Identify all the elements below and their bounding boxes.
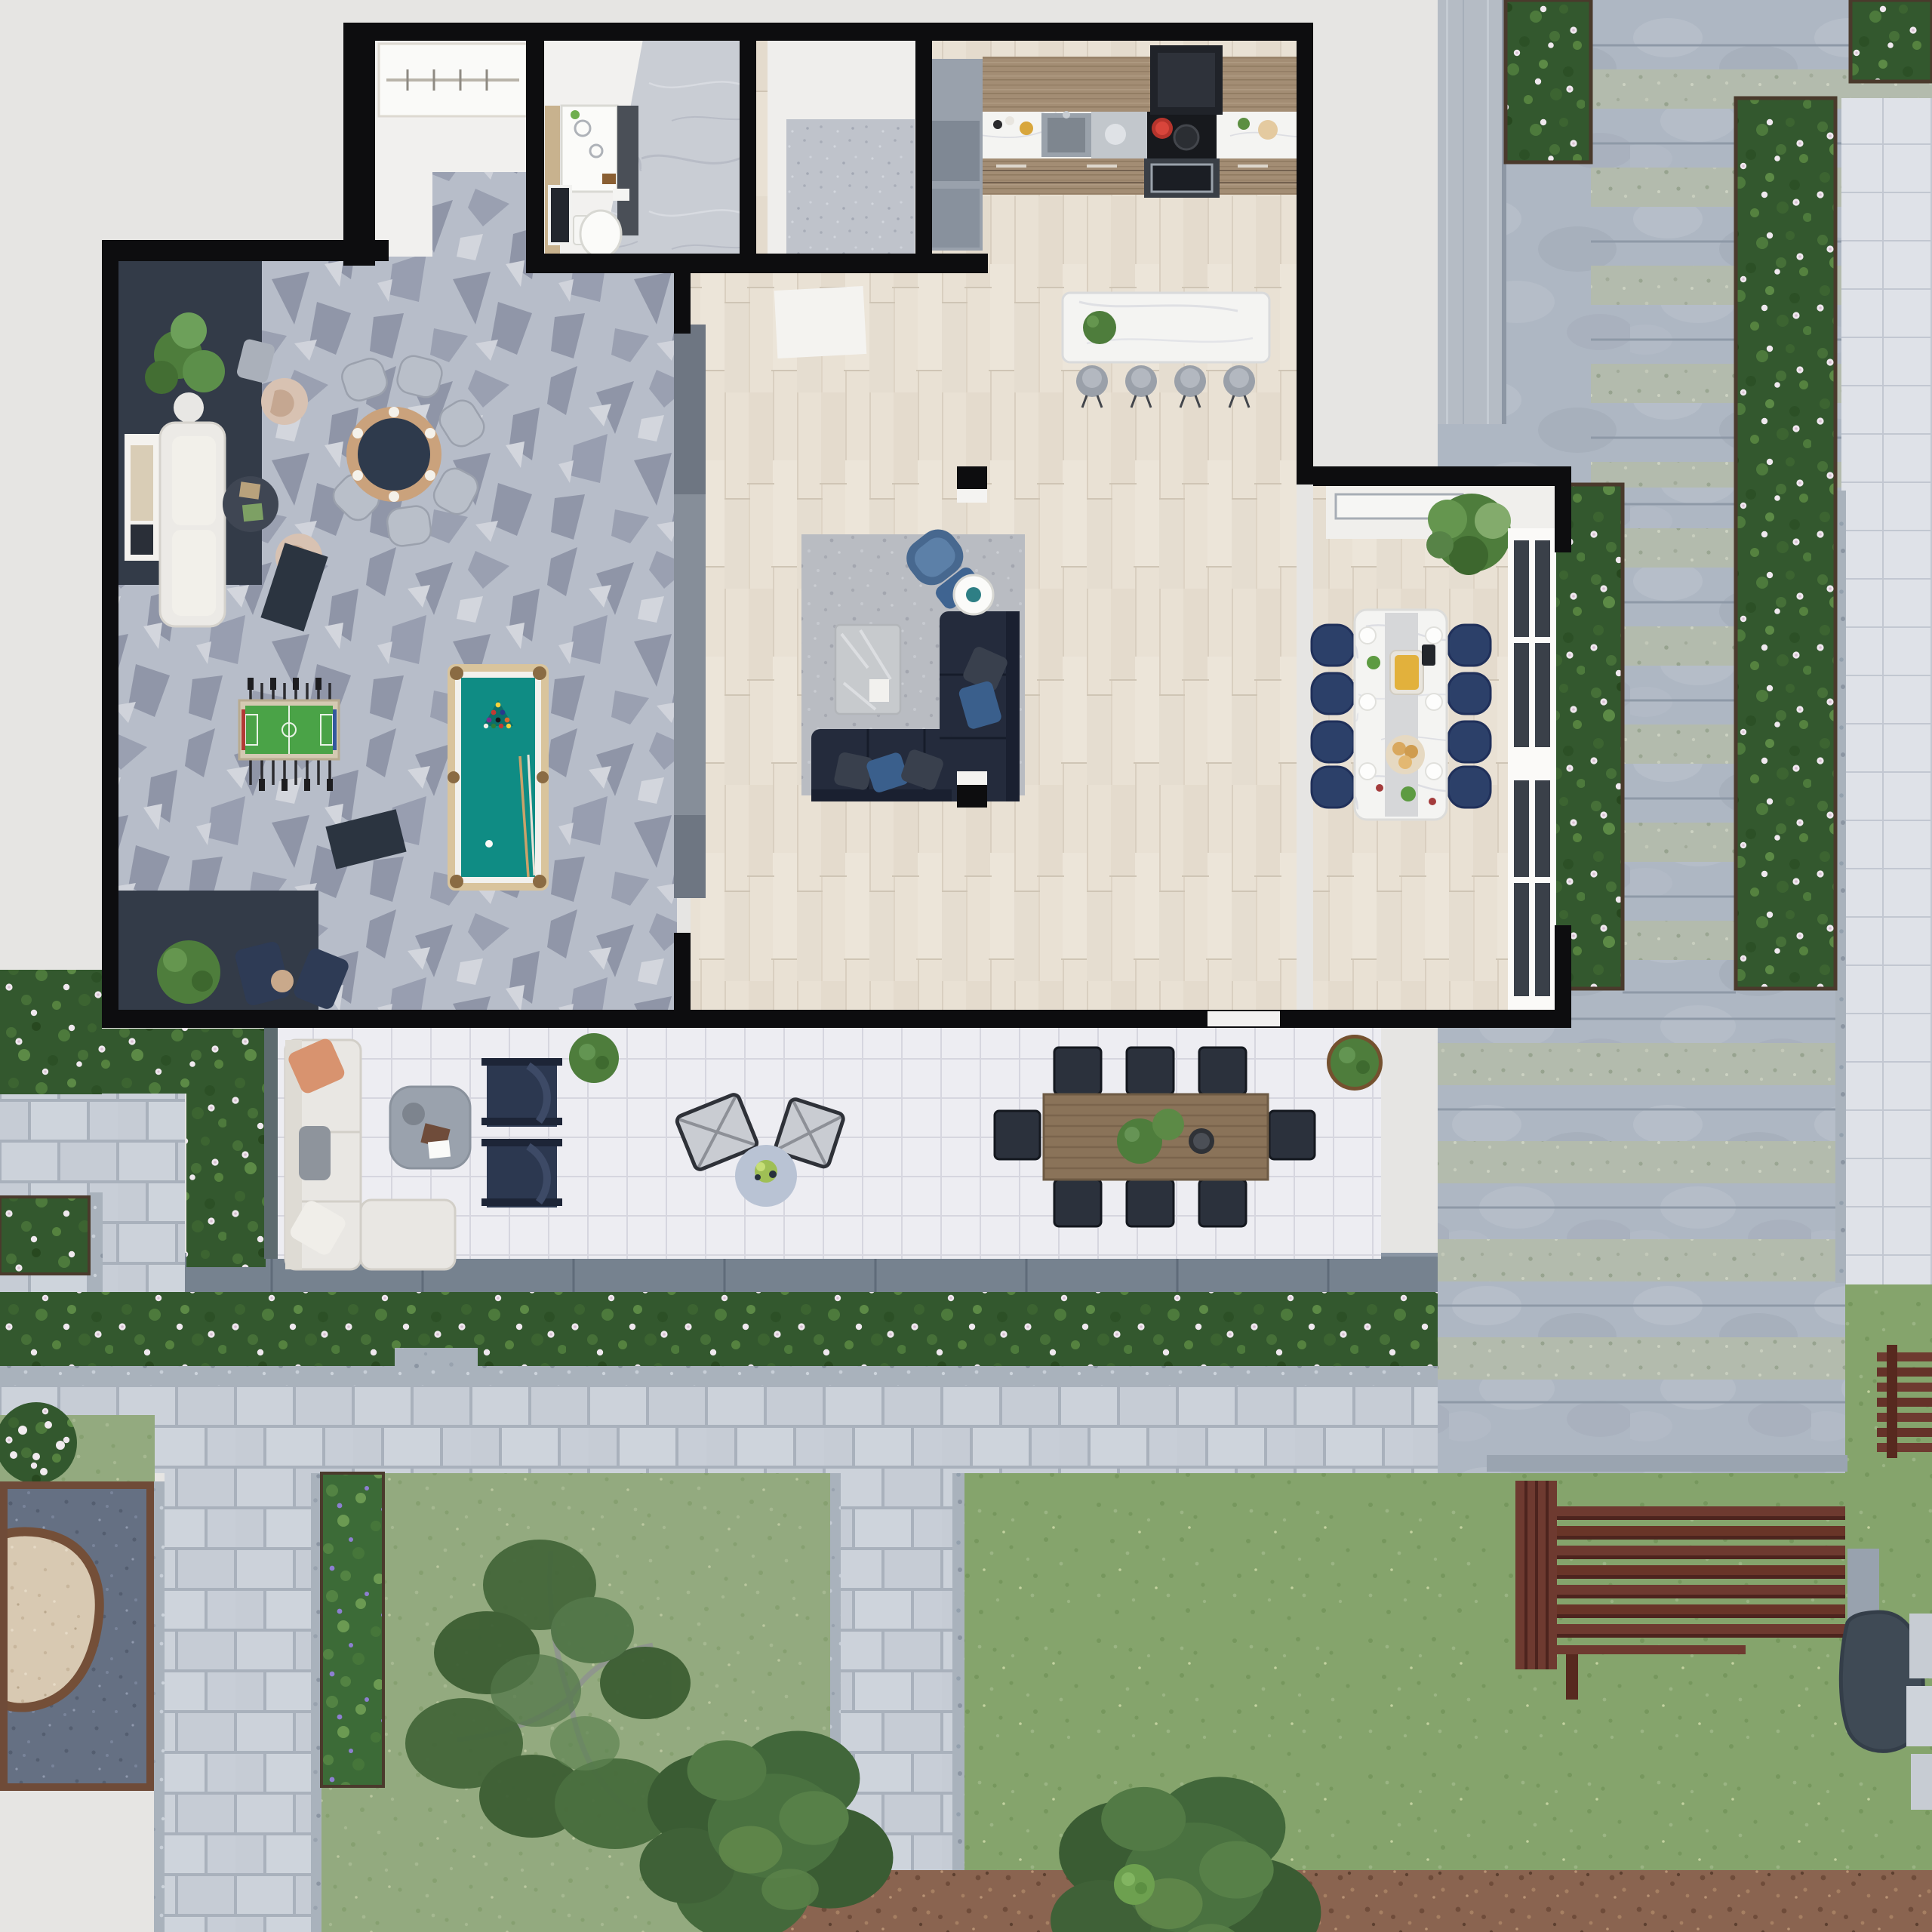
wall-east-upper [1297, 39, 1313, 485]
potted-shrub-terrace-right [1327, 1035, 1383, 1091]
cooktop [1147, 112, 1217, 158]
concrete-wall [1438, 0, 1504, 424]
outdoor-chairs-bottom [1054, 1180, 1246, 1226]
gravel-a [154, 1481, 165, 1932]
beige-armchair-1 [261, 378, 308, 425]
upper-paver-strip [1841, 98, 1932, 491]
wall-bathroom-south [526, 254, 768, 273]
daisy-hedge-west-2 [0, 1029, 266, 1094]
garden-south-bands [0, 1253, 1438, 1473]
game-sofa-white [160, 423, 225, 626]
small-shrub [1114, 1864, 1155, 1905]
bed-gravel-edge [89, 1192, 103, 1292]
corridor-carpet [432, 172, 528, 266]
stone-sill-behind-bench [1487, 1455, 1847, 1472]
outdoor-chair-west [995, 1111, 1040, 1159]
gray-pillow [299, 1126, 331, 1180]
wall-west [102, 240, 118, 1028]
gravel-strip [0, 1366, 1438, 1386]
round-coffee-table [223, 476, 278, 532]
wall-art [131, 445, 153, 521]
outdoor-chair-east [1269, 1111, 1315, 1159]
flower-hedge-house-side [1553, 485, 1623, 989]
flower-hedge-top [1506, 0, 1591, 162]
purple-flower-bed [321, 1473, 383, 1786]
entry-hall [379, 44, 527, 116]
bench-leg [1566, 1654, 1578, 1700]
upper-counter-band [983, 57, 1297, 114]
wall-foyer-east [915, 39, 932, 257]
side-table [954, 575, 993, 614]
wall-dining-se [1555, 925, 1571, 1028]
wall-dining-north [1313, 466, 1571, 486]
wall-gameroom-north [102, 240, 389, 261]
vanity-cabinet [617, 106, 638, 235]
pool-table [448, 664, 549, 891]
table-runner [1385, 613, 1418, 817]
flower-hedge-long [1736, 98, 1835, 989]
entry-mat [774, 286, 867, 358]
daisy-hedge-west-3 [186, 1092, 266, 1267]
terrace-door-sill [1207, 1011, 1280, 1026]
oven [1144, 158, 1220, 198]
foyer-stone-mat [786, 119, 915, 255]
coffee-table-silver [835, 625, 900, 714]
outdoor-chairs-top [1054, 1048, 1246, 1094]
wall-column-south [957, 785, 987, 808]
bathroom-art [549, 186, 571, 244]
terrace-coffee-table [390, 1087, 470, 1168]
bench-slats [1557, 1506, 1845, 1638]
gravel-b [311, 1473, 321, 1932]
plant-sw [157, 940, 220, 1004]
wall-bathroom-west [526, 39, 544, 266]
potted-shrub-terrace-left [569, 1033, 619, 1083]
base-cabinets [983, 158, 1297, 195]
side-stool [271, 970, 294, 992]
wall-divider-north-stub [674, 261, 691, 334]
outdoor-dining-table [1044, 1094, 1268, 1180]
paver-stone-3 [1911, 1754, 1932, 1810]
wall-divider-south-stub [674, 933, 691, 1011]
wall-bathroom-east [740, 39, 756, 258]
foosball-red-stripe [241, 709, 245, 750]
gravel-d [952, 1473, 964, 1932]
wall-column-north [957, 466, 987, 489]
column-sill-north [957, 489, 987, 503]
navy-lounger-1 [481, 1058, 562, 1127]
kitchen-island [1063, 293, 1269, 362]
paver-stone-1 [1909, 1614, 1932, 1678]
playground [0, 1481, 154, 1791]
terrace [264, 1028, 1383, 1269]
hedge-box-corner [1850, 0, 1932, 82]
paver-column [1846, 491, 1932, 1284]
dining-table [1355, 610, 1447, 820]
french-doors [1508, 528, 1556, 1011]
wall-north [343, 23, 1313, 41]
wall-closet-west [343, 23, 375, 266]
glass-planter-wall [264, 1028, 278, 1259]
hedge-gap [395, 1348, 478, 1366]
path-west [165, 1473, 311, 1932]
paver-walkway [0, 1386, 1438, 1473]
pillow-dark-2 [833, 751, 874, 791]
wall-dining-ne [1555, 466, 1571, 552]
bistro-table [735, 1145, 797, 1207]
daisy-hedge-band [0, 1292, 1438, 1366]
dense-tree-center [640, 1731, 894, 1932]
corner-flower-bed [0, 1197, 89, 1274]
counter-right [1217, 112, 1297, 158]
wall-foyer-south [766, 254, 988, 273]
navy-lounger-2 [481, 1139, 562, 1207]
cue-ball [485, 840, 493, 848]
paver-stone-2 [1906, 1686, 1932, 1746]
wall-south [102, 1010, 1571, 1028]
column-sill-south [957, 771, 987, 785]
foosball-blue-stripe [333, 709, 337, 750]
stairs-lower [1438, 1004, 1845, 1419]
kitchen-sink [1041, 111, 1091, 157]
floorplan-render [0, 0, 1932, 1932]
